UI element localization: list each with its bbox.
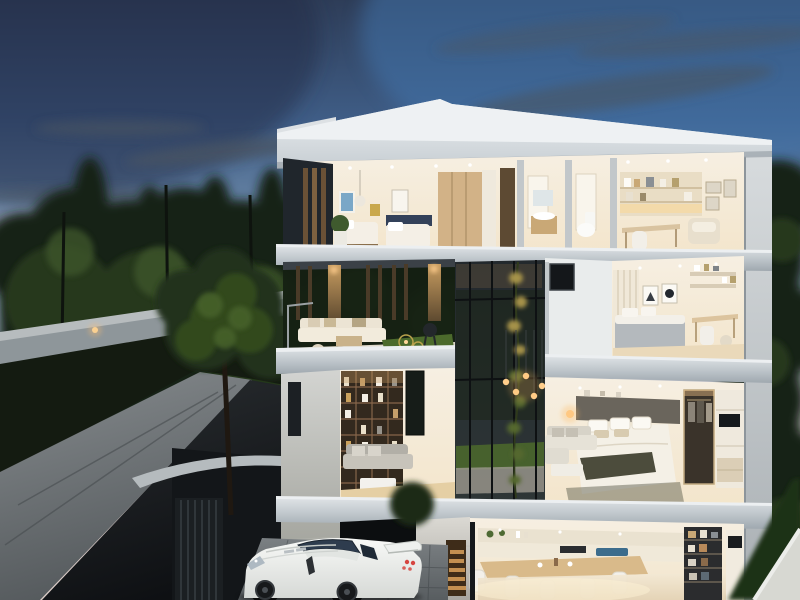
facade-wood-slat bbox=[321, 168, 326, 252]
tall-window bbox=[406, 371, 424, 435]
wall-edge-shade bbox=[545, 262, 549, 358]
leaf-cluster bbox=[214, 327, 236, 349]
spotlight bbox=[390, 165, 394, 169]
facade-wood-slat bbox=[303, 168, 308, 252]
item bbox=[688, 559, 696, 566]
leaf-cluster bbox=[228, 306, 252, 330]
slat bbox=[404, 264, 408, 320]
item bbox=[704, 264, 709, 271]
item bbox=[688, 531, 696, 538]
tableware bbox=[538, 563, 543, 568]
clerestory-window bbox=[550, 264, 574, 290]
bulb-glow bbox=[508, 370, 540, 402]
item bbox=[711, 532, 718, 538]
slat bbox=[308, 266, 312, 320]
item bbox=[701, 572, 709, 580]
post-downlight bbox=[430, 265, 438, 273]
tall-cabinet bbox=[482, 170, 496, 254]
spotlight bbox=[714, 262, 717, 265]
pantry-shelf-unit bbox=[684, 527, 722, 600]
item bbox=[689, 573, 697, 580]
leaf-cluster bbox=[175, 319, 217, 361]
bottle bbox=[516, 531, 520, 538]
dark-wood-door bbox=[500, 168, 515, 254]
glazing-mullion bbox=[470, 522, 475, 600]
rear-hub bbox=[344, 589, 350, 595]
box-shelf bbox=[724, 180, 736, 197]
leaf bbox=[507, 422, 521, 434]
armchair-cushion bbox=[692, 222, 716, 232]
pendant-lamp bbox=[355, 196, 366, 207]
item bbox=[699, 544, 707, 552]
tail-lamp bbox=[405, 560, 409, 564]
gray-sofa bbox=[343, 444, 413, 469]
item bbox=[378, 393, 383, 402]
deco-item bbox=[616, 392, 621, 397]
poster-blue bbox=[340, 192, 354, 212]
item bbox=[345, 410, 351, 418]
item bbox=[626, 192, 633, 201]
box-shelf bbox=[706, 182, 721, 193]
cushion bbox=[352, 446, 365, 456]
slat bbox=[378, 265, 382, 320]
sofa-seat bbox=[343, 454, 413, 469]
slat bbox=[392, 265, 396, 320]
leaf bbox=[509, 272, 523, 284]
leaf-cluster bbox=[197, 292, 223, 318]
house-cutaway bbox=[276, 99, 772, 600]
spotlight bbox=[618, 385, 621, 388]
spotlight bbox=[498, 528, 501, 531]
bedroom-2 bbox=[612, 256, 744, 362]
spotlight bbox=[666, 159, 670, 163]
low-table bbox=[336, 336, 362, 346]
partition-wall bbox=[610, 158, 617, 256]
wall-light-glow bbox=[88, 323, 102, 337]
spotlight bbox=[348, 166, 352, 170]
mirror bbox=[533, 190, 553, 206]
sink bbox=[596, 548, 628, 556]
architectural-render bbox=[0, 0, 800, 600]
scene-canvas bbox=[0, 0, 800, 600]
item bbox=[624, 178, 631, 187]
box-shelf bbox=[706, 197, 719, 210]
cloud bbox=[35, 120, 205, 136]
deco-item bbox=[584, 390, 590, 396]
pillow bbox=[641, 307, 656, 316]
lantern-candle bbox=[404, 340, 408, 344]
spotlight bbox=[678, 264, 681, 267]
armchair bbox=[688, 218, 720, 244]
double-height-glazing bbox=[455, 260, 545, 508]
base-shrub bbox=[390, 482, 434, 526]
spotlight bbox=[638, 266, 641, 269]
desk-chair bbox=[632, 231, 647, 250]
item bbox=[361, 425, 366, 434]
spotlight bbox=[468, 163, 472, 167]
tableware bbox=[568, 562, 573, 567]
tv-screen bbox=[719, 414, 740, 427]
leaf-highlight bbox=[46, 228, 94, 276]
poster-white bbox=[392, 190, 408, 212]
hanging-garment bbox=[706, 403, 712, 422]
top-floor bbox=[283, 152, 744, 258]
terrace bbox=[276, 259, 462, 374]
pillow bbox=[610, 418, 630, 430]
item bbox=[346, 393, 351, 402]
pillow bbox=[632, 417, 651, 429]
partition-wall bbox=[565, 160, 572, 256]
item bbox=[730, 276, 736, 283]
spotlight bbox=[578, 386, 581, 389]
spotlight bbox=[558, 530, 561, 533]
bottle bbox=[524, 532, 528, 538]
interior-warm-hint bbox=[456, 264, 542, 288]
master-bedroom bbox=[545, 377, 744, 508]
item bbox=[660, 179, 666, 187]
wardrobe bbox=[438, 172, 482, 252]
headlight-glint bbox=[255, 560, 258, 563]
sink bbox=[533, 212, 555, 220]
item bbox=[634, 179, 640, 187]
item bbox=[713, 266, 719, 271]
closet-light bbox=[684, 390, 714, 396]
spotlight bbox=[658, 384, 661, 387]
poster-mustard bbox=[370, 204, 380, 216]
lamp-glow bbox=[561, 405, 579, 423]
wall-shelf bbox=[690, 272, 736, 276]
tail-lamp bbox=[402, 566, 406, 570]
item bbox=[377, 426, 382, 434]
item bbox=[646, 177, 654, 187]
circle-art bbox=[665, 289, 674, 298]
item bbox=[672, 178, 679, 187]
item bbox=[393, 409, 398, 418]
pillow bbox=[622, 308, 638, 317]
sofa-seat bbox=[545, 435, 597, 450]
front-hub bbox=[262, 587, 268, 593]
kitchen-dining bbox=[470, 518, 744, 600]
coffee-table bbox=[551, 464, 583, 476]
chaise bbox=[545, 448, 569, 464]
cushion bbox=[368, 446, 381, 456]
accent-pillow bbox=[614, 429, 629, 437]
walk-in-closet bbox=[684, 390, 714, 484]
bed-pillow bbox=[388, 222, 403, 231]
chair bbox=[700, 326, 714, 345]
item bbox=[688, 545, 695, 552]
leaf bbox=[507, 320, 521, 332]
spotlight bbox=[704, 158, 708, 162]
leaf bbox=[512, 448, 524, 460]
tv-wall-unit bbox=[716, 390, 744, 488]
cushion bbox=[566, 428, 578, 437]
wall-shelf bbox=[690, 284, 736, 288]
item bbox=[362, 394, 368, 402]
spotlight bbox=[626, 160, 630, 164]
cushion bbox=[308, 318, 320, 327]
grill-bowl bbox=[423, 323, 437, 337]
plant bbox=[331, 215, 349, 233]
leaf bbox=[509, 475, 521, 485]
hanging-garment bbox=[688, 402, 695, 422]
slot-window bbox=[288, 382, 301, 436]
slat bbox=[296, 266, 300, 320]
stair-glow bbox=[446, 540, 466, 596]
item bbox=[700, 530, 707, 538]
post-downlight bbox=[330, 266, 338, 274]
wall-screen bbox=[728, 536, 742, 548]
bottle bbox=[554, 558, 558, 566]
leaf bbox=[515, 296, 527, 308]
cushion bbox=[324, 318, 336, 327]
cooktop bbox=[560, 546, 586, 553]
tail-lamp bbox=[411, 561, 415, 565]
shelf-top-glow bbox=[341, 371, 403, 383]
partition-wall bbox=[517, 160, 524, 256]
spotlight bbox=[618, 532, 621, 535]
mid-wall bbox=[545, 258, 612, 362]
cushion bbox=[552, 428, 564, 437]
item bbox=[722, 277, 727, 283]
planter-pot bbox=[334, 231, 347, 246]
shelf-plant bbox=[487, 531, 494, 538]
tail-lamp bbox=[408, 567, 412, 571]
toilet-bowl bbox=[577, 223, 595, 237]
item bbox=[701, 558, 708, 566]
hanging-garment bbox=[697, 401, 704, 423]
item bbox=[640, 193, 646, 201]
item bbox=[694, 265, 700, 271]
item bbox=[684, 192, 692, 201]
deco-item bbox=[600, 391, 605, 396]
slat bbox=[366, 265, 370, 320]
cushion bbox=[352, 318, 366, 327]
shelf-backlight bbox=[620, 204, 702, 213]
facade-wood-slat bbox=[312, 168, 317, 252]
spotlight bbox=[434, 164, 438, 168]
